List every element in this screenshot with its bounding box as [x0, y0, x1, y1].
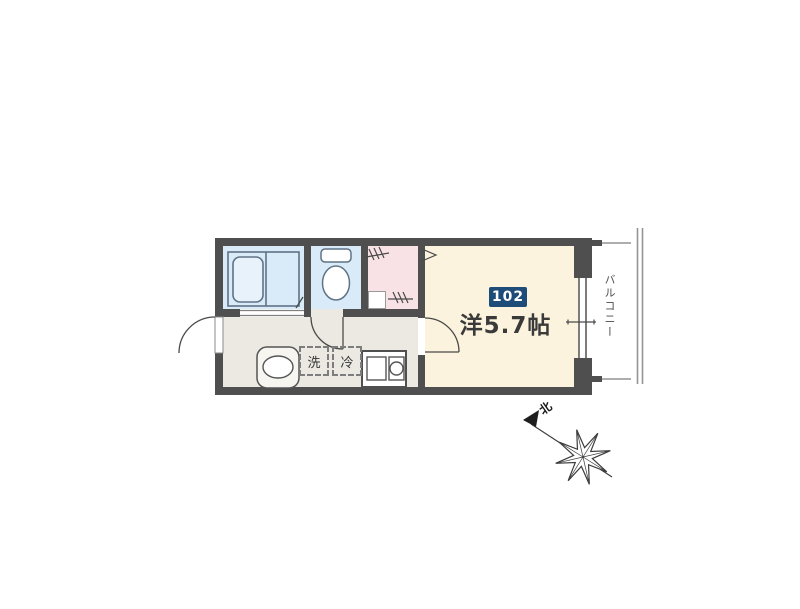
washing-machine-label: 洗: [307, 352, 320, 371]
entrance-door-arc: [179, 317, 215, 353]
hanger-pipe-top: [366, 247, 389, 260]
kitchen-sink: [367, 357, 386, 380]
toilet: [321, 249, 351, 300]
toilet-tank: [321, 249, 351, 262]
compass-star: [544, 418, 621, 495]
bathtub-basin: [233, 257, 263, 302]
balcony-rails: [592, 228, 643, 384]
toilet-door-arc: [311, 317, 343, 349]
floorplan-canvas: 北 102 洋5.7帖 バルコニー 洗 冷: [0, 0, 800, 609]
washbasin: [257, 347, 299, 388]
toilet-door: [311, 317, 343, 349]
kitchen-counter: [362, 351, 406, 387]
hanger-pipe-bottom: [388, 292, 413, 303]
door-direction-mark: [422, 249, 436, 261]
refrigerator-label: 冷: [340, 352, 353, 371]
linework-layer: 北: [0, 0, 800, 609]
refrigerator-box: 冷: [332, 346, 362, 376]
balcony-label: バルコニー: [601, 274, 617, 369]
room-size-label: 洋5.7帖: [433, 306, 578, 334]
washing-machine-box: 洗: [299, 346, 329, 376]
balcony-rail-cap-bottom: [592, 376, 602, 382]
entrance-door: [179, 317, 223, 353]
stove-burner: [390, 362, 403, 375]
north-label: 北: [536, 398, 554, 417]
toilet-bowl: [323, 266, 350, 300]
compass-rose: 北: [523, 398, 622, 495]
washbasin-bowl: [263, 356, 293, 378]
entrance-door-leaf: [215, 317, 223, 353]
bathtub: [228, 252, 303, 308]
unit-number-badge: 102: [489, 287, 527, 307]
bathroom-sliding-door: [240, 309, 304, 317]
balcony-rail-cap-top: [592, 240, 602, 246]
